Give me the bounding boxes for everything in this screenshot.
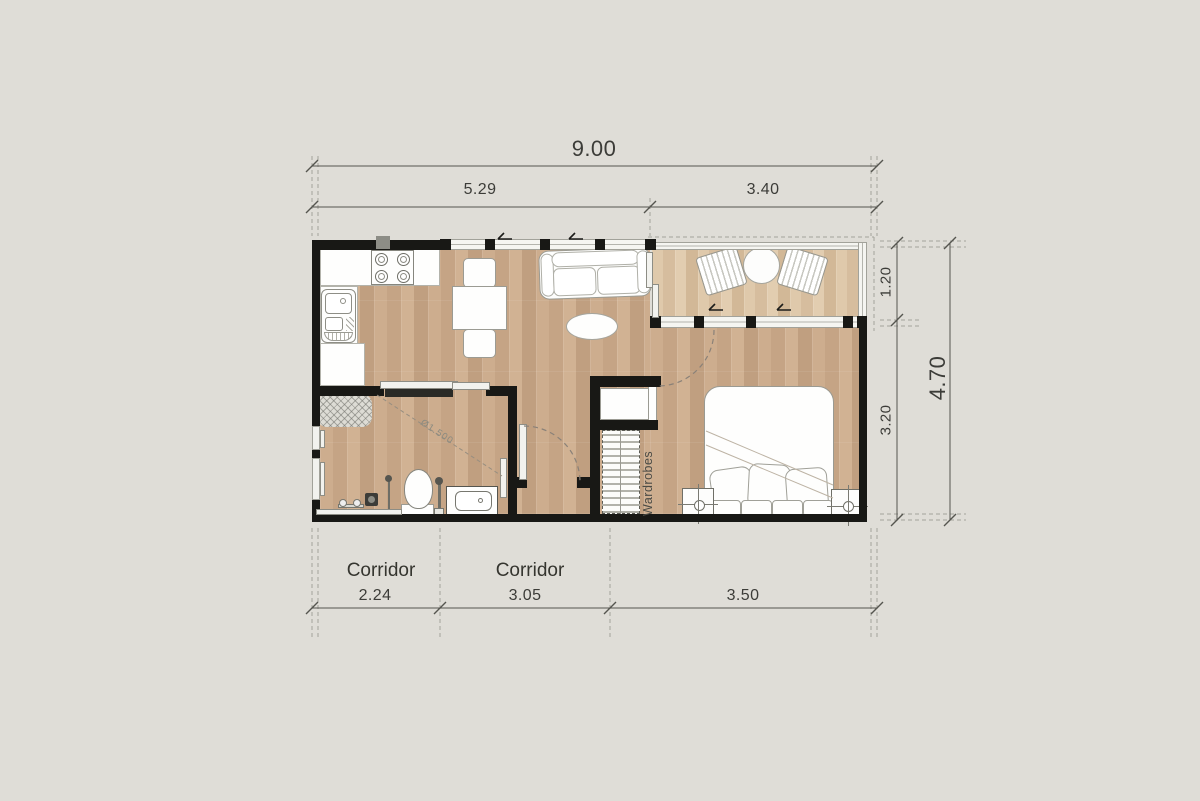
floor-plan-canvas: Wardrobes <box>0 0 1200 801</box>
duvet-fold-lines <box>706 431 833 498</box>
dim-right-seg-2: 3.20 <box>878 405 895 436</box>
door-swing-arcs <box>524 330 714 482</box>
dim-right-seg-1: 1.20 <box>878 267 895 298</box>
bedroom-door-arc <box>658 330 714 386</box>
dim-width-seg-1: 5.29 <box>464 181 497 199</box>
corridor-door-arc <box>524 426 580 482</box>
dim-bottom-seg-2: 3.05 <box>509 587 542 605</box>
annotation-overlay: Ø1.500 <box>0 0 1200 801</box>
dim-width-seg-2: 3.40 <box>747 181 780 199</box>
dim-bottom-seg-1: 2.24 <box>359 587 392 605</box>
dimension-lines <box>312 166 950 608</box>
window-opening-arrows <box>498 233 791 310</box>
dim-bottom-seg-3: 3.50 <box>727 587 760 605</box>
wardrobes-label: Wardrobes <box>641 436 655 516</box>
dim-width-total: 9.00 <box>572 136 616 162</box>
turning-circle-annotation: Ø1.500 <box>377 395 502 476</box>
room-label-corridor-1: Corridor <box>347 560 416 582</box>
room-label-corridor-2: Corridor <box>496 560 565 582</box>
dimension-ticks <box>306 160 956 614</box>
dim-height-total: 4.70 <box>925 356 951 400</box>
turning-radius-label: Ø1.500 <box>418 417 455 446</box>
